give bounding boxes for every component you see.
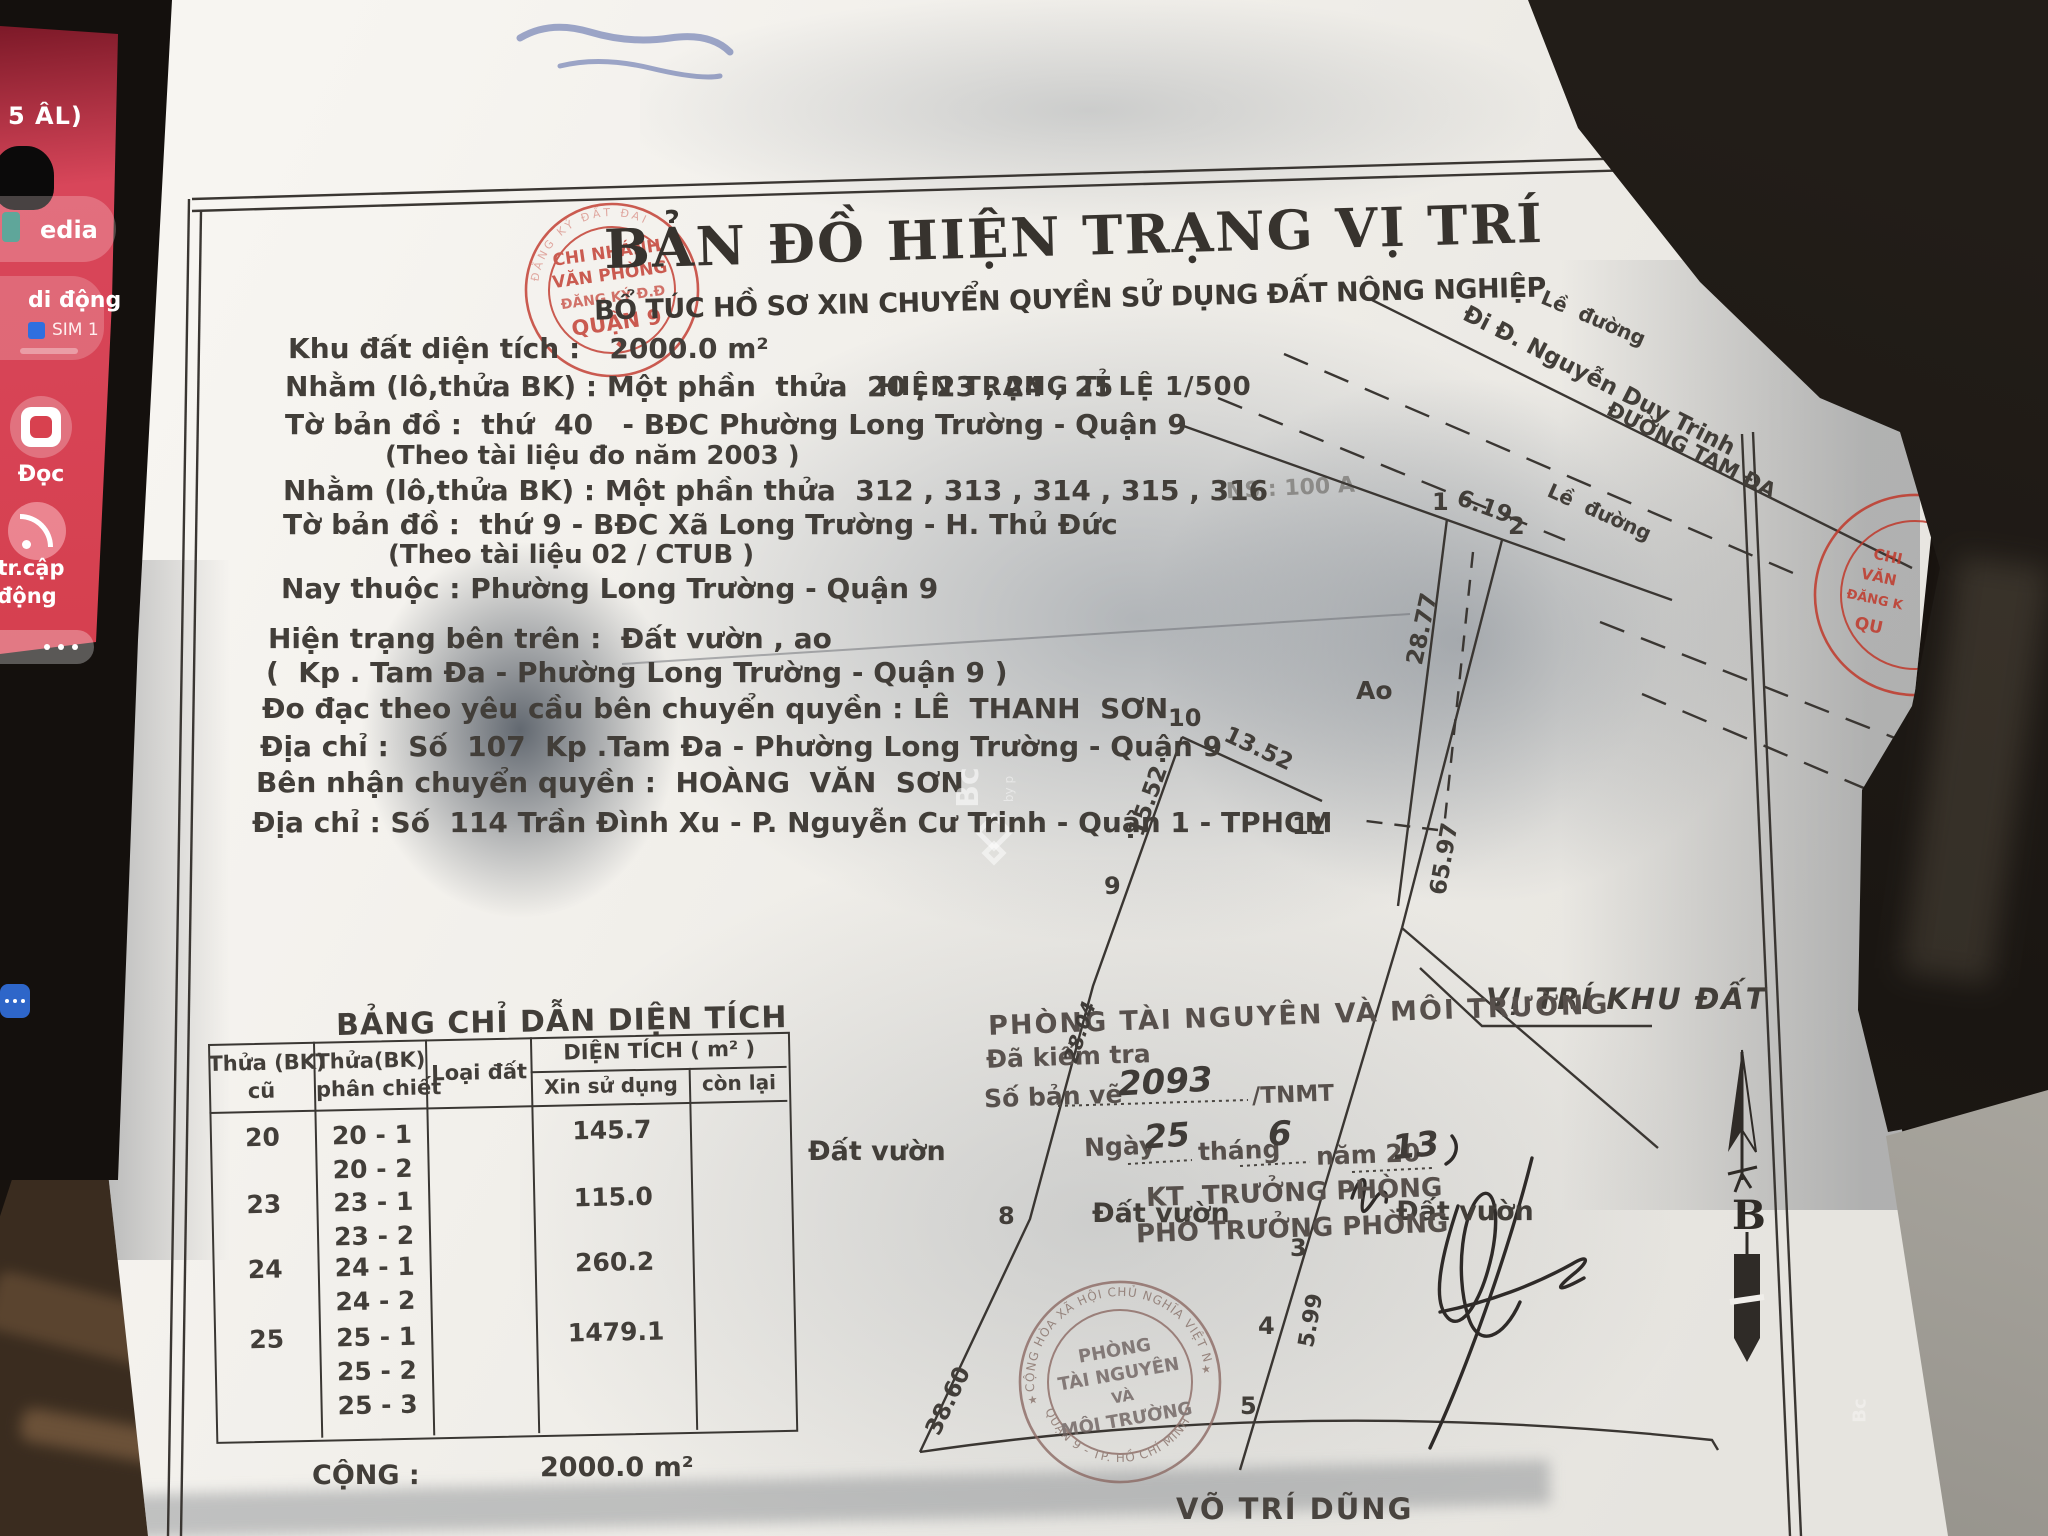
cell-old: 20 <box>210 1122 316 1153</box>
table-total-label: CỘNG : <box>312 1460 420 1491</box>
area-table: Thửa (BK) cũ Thửa(BK) phân chiết Loại đấ… <box>208 1032 798 1444</box>
info-line: Tờ bản đồ : thứ 9 - BĐC Xã Long Trường -… <box>283 508 1118 541</box>
sim-widget-title: di động <box>28 288 121 313</box>
cell-use: 115.0 <box>535 1181 692 1213</box>
document-content: ĐĂNG KÝ ĐẤT ĐAI CHI NHÁNH VĂN PHÒNG ĐĂNG… <box>0 0 2048 1536</box>
cell-sub: 25 - 3 <box>322 1389 433 1420</box>
status-line: ( Kp . Tam Đa - Phường Long Trường - Quậ… <box>266 656 1008 689</box>
cell-sub: 24 - 1 <box>319 1251 430 1282</box>
read-app-label: Đọc <box>10 462 72 487</box>
cell-sub: 23 - 1 <box>318 1186 429 1217</box>
pond-dashed-line <box>1444 552 1473 828</box>
more-app-dot <box>13 999 17 1003</box>
watermark-text: Bc <box>951 767 986 808</box>
col-header: Loại đất <box>427 1059 530 1085</box>
scale-heading: HIỆN TRẠNG TỈ LỆ 1/500 <box>878 372 1252 402</box>
cell-old: 25 <box>214 1324 320 1355</box>
drawing-no-suffix: /TNMT <box>1252 1081 1335 1110</box>
data-app-icon <box>22 540 31 549</box>
document-paper: ĐĂNG KÝ ĐẤT ĐAI CHI NHÁNH VĂN PHÒNG ĐĂNG… <box>0 0 2048 1536</box>
cell-use: 1479.1 <box>538 1316 695 1348</box>
status-line: Đo đạc theo yêu cầu bên chuyển quyền : L… <box>262 692 1168 725</box>
col-header: cũ <box>209 1078 314 1104</box>
status-line: Hiện trạng bên trên : Đất vườn , ao <box>268 622 832 655</box>
date-year: 13 <box>1390 1124 1441 1169</box>
cell-sub: 20 - 2 <box>317 1153 428 1184</box>
col-header: phân chiết <box>316 1075 426 1101</box>
info-line: (Theo tài liệu 02 / CTUB ) <box>388 540 754 570</box>
drawing-no-label: Số bản vẽ <box>984 1080 1123 1114</box>
phone-status-text: 5 ÂL) <box>8 102 83 130</box>
info-line: Tờ bản đồ : thứ 40 - BĐC Phường Long Trư… <box>285 408 1187 441</box>
read-app-icon <box>30 416 52 438</box>
cell-sub: 23 - 2 <box>319 1220 430 1251</box>
col-header: còn lại <box>691 1070 787 1096</box>
svg-text:ĐĂNG K: ĐĂNG K <box>1845 586 1905 614</box>
svg-text:VÀ: VÀ <box>1110 1385 1136 1408</box>
info-line: Nhằm (lô,thửa BK) : Một phần thửa 312 , … <box>283 474 1268 507</box>
point-label: 10 <box>1168 704 1201 732</box>
watermark-tagline: by p <box>1002 776 1016 802</box>
cell-old: 24 <box>212 1254 318 1285</box>
photo-of-cadastral-document: ĐĂNG KÝ ĐẤT ĐAI CHI NHÁNH VĂN PHÒNG ĐĂNG… <box>0 0 2048 1536</box>
point-label: 8 <box>998 1202 1015 1230</box>
status-line: Địa chỉ : Số 107 Kp .Tam Đa - Phường Lon… <box>260 730 1222 763</box>
date-month: 6 <box>1268 1114 1292 1154</box>
data-app-label: động <box>0 584 62 608</box>
cell-sub: 20 - 1 <box>317 1119 428 1150</box>
sim-icon <box>28 322 45 339</box>
media-widget-label: edia <box>40 216 98 244</box>
col-header: Xin sử dụng <box>533 1072 689 1099</box>
info-line: (Theo tài liệu đo năm 2003 ) <box>385 441 800 471</box>
cell-use: 260.2 <box>536 1246 693 1278</box>
cell-sub: 25 - 2 <box>322 1355 433 1386</box>
sim-widget-sub: SIM 1 <box>52 320 99 340</box>
col-header: Thửa(BK) <box>315 1047 425 1073</box>
pond-label: Ao <box>1356 676 1393 705</box>
parcel-bottom-edge <box>920 1421 1718 1452</box>
dock-dot <box>58 644 64 650</box>
svg-text:★: ★ <box>1200 1362 1212 1377</box>
cell-old: 23 <box>211 1189 317 1220</box>
col-header: Thửa (BK) <box>208 1050 313 1076</box>
more-app-dot <box>5 999 9 1003</box>
watermark-text-corner: Bc <box>1850 1398 1871 1422</box>
wood-shine <box>1901 556 2048 984</box>
parcel-branch-line <box>1402 928 1658 1148</box>
point-label: 1 <box>1432 488 1449 516</box>
status-line: Bên nhận chuyển quyền : HOÀNG VĂN SƠN <box>256 766 964 799</box>
svg-text:VĂN: VĂN <box>1859 564 1898 590</box>
table-total-value: 2000.0 m² <box>540 1452 694 1483</box>
svg-text:★: ★ <box>1027 1393 1039 1408</box>
point-label: 5 <box>1240 1392 1257 1420</box>
drawing-no-value: 2093 <box>1117 1060 1214 1105</box>
cell-sub: 25 - 1 <box>321 1321 432 1352</box>
signer-name: VÕ TRÍ DŨNG <box>1176 1492 1413 1526</box>
date-day: 25 <box>1143 1114 1192 1156</box>
svg-text:QU: QU <box>1853 613 1885 638</box>
point-label: 11 <box>1292 812 1325 840</box>
sim-widget-bar <box>20 348 78 354</box>
info-line: Khu đất diện tích : 2000.0 m² <box>288 332 769 365</box>
point-label: 9 <box>1104 872 1121 900</box>
dock-dot <box>72 644 78 650</box>
phone: 5 ÂL) edia di động SIM 1 Đọc tr.cập động <box>0 0 200 1180</box>
pond-dashed-line <box>1358 820 1438 830</box>
cell-sub: 24 - 2 <box>320 1285 431 1316</box>
road-dashed-line <box>1642 694 1892 800</box>
north-letter: B <box>1732 1192 1766 1239</box>
point-label: 4 <box>1258 1312 1275 1340</box>
svg-text:CHI: CHI <box>1872 545 1904 569</box>
blue-pen-scribble <box>520 27 730 77</box>
dock-dot <box>44 644 50 650</box>
cell-use: 145.7 <box>534 1114 691 1146</box>
status-line: Địa chỉ : Số 114 Trần Đình Xu - P. Nguyễ… <box>252 806 1332 839</box>
info-line: Nay thuộc : Phường Long Trường - Quận 9 <box>281 572 938 605</box>
land-use-label: Đất vườn <box>808 1136 946 1167</box>
more-app-dot <box>21 999 25 1003</box>
data-app-label: tr.cập <box>0 556 66 580</box>
